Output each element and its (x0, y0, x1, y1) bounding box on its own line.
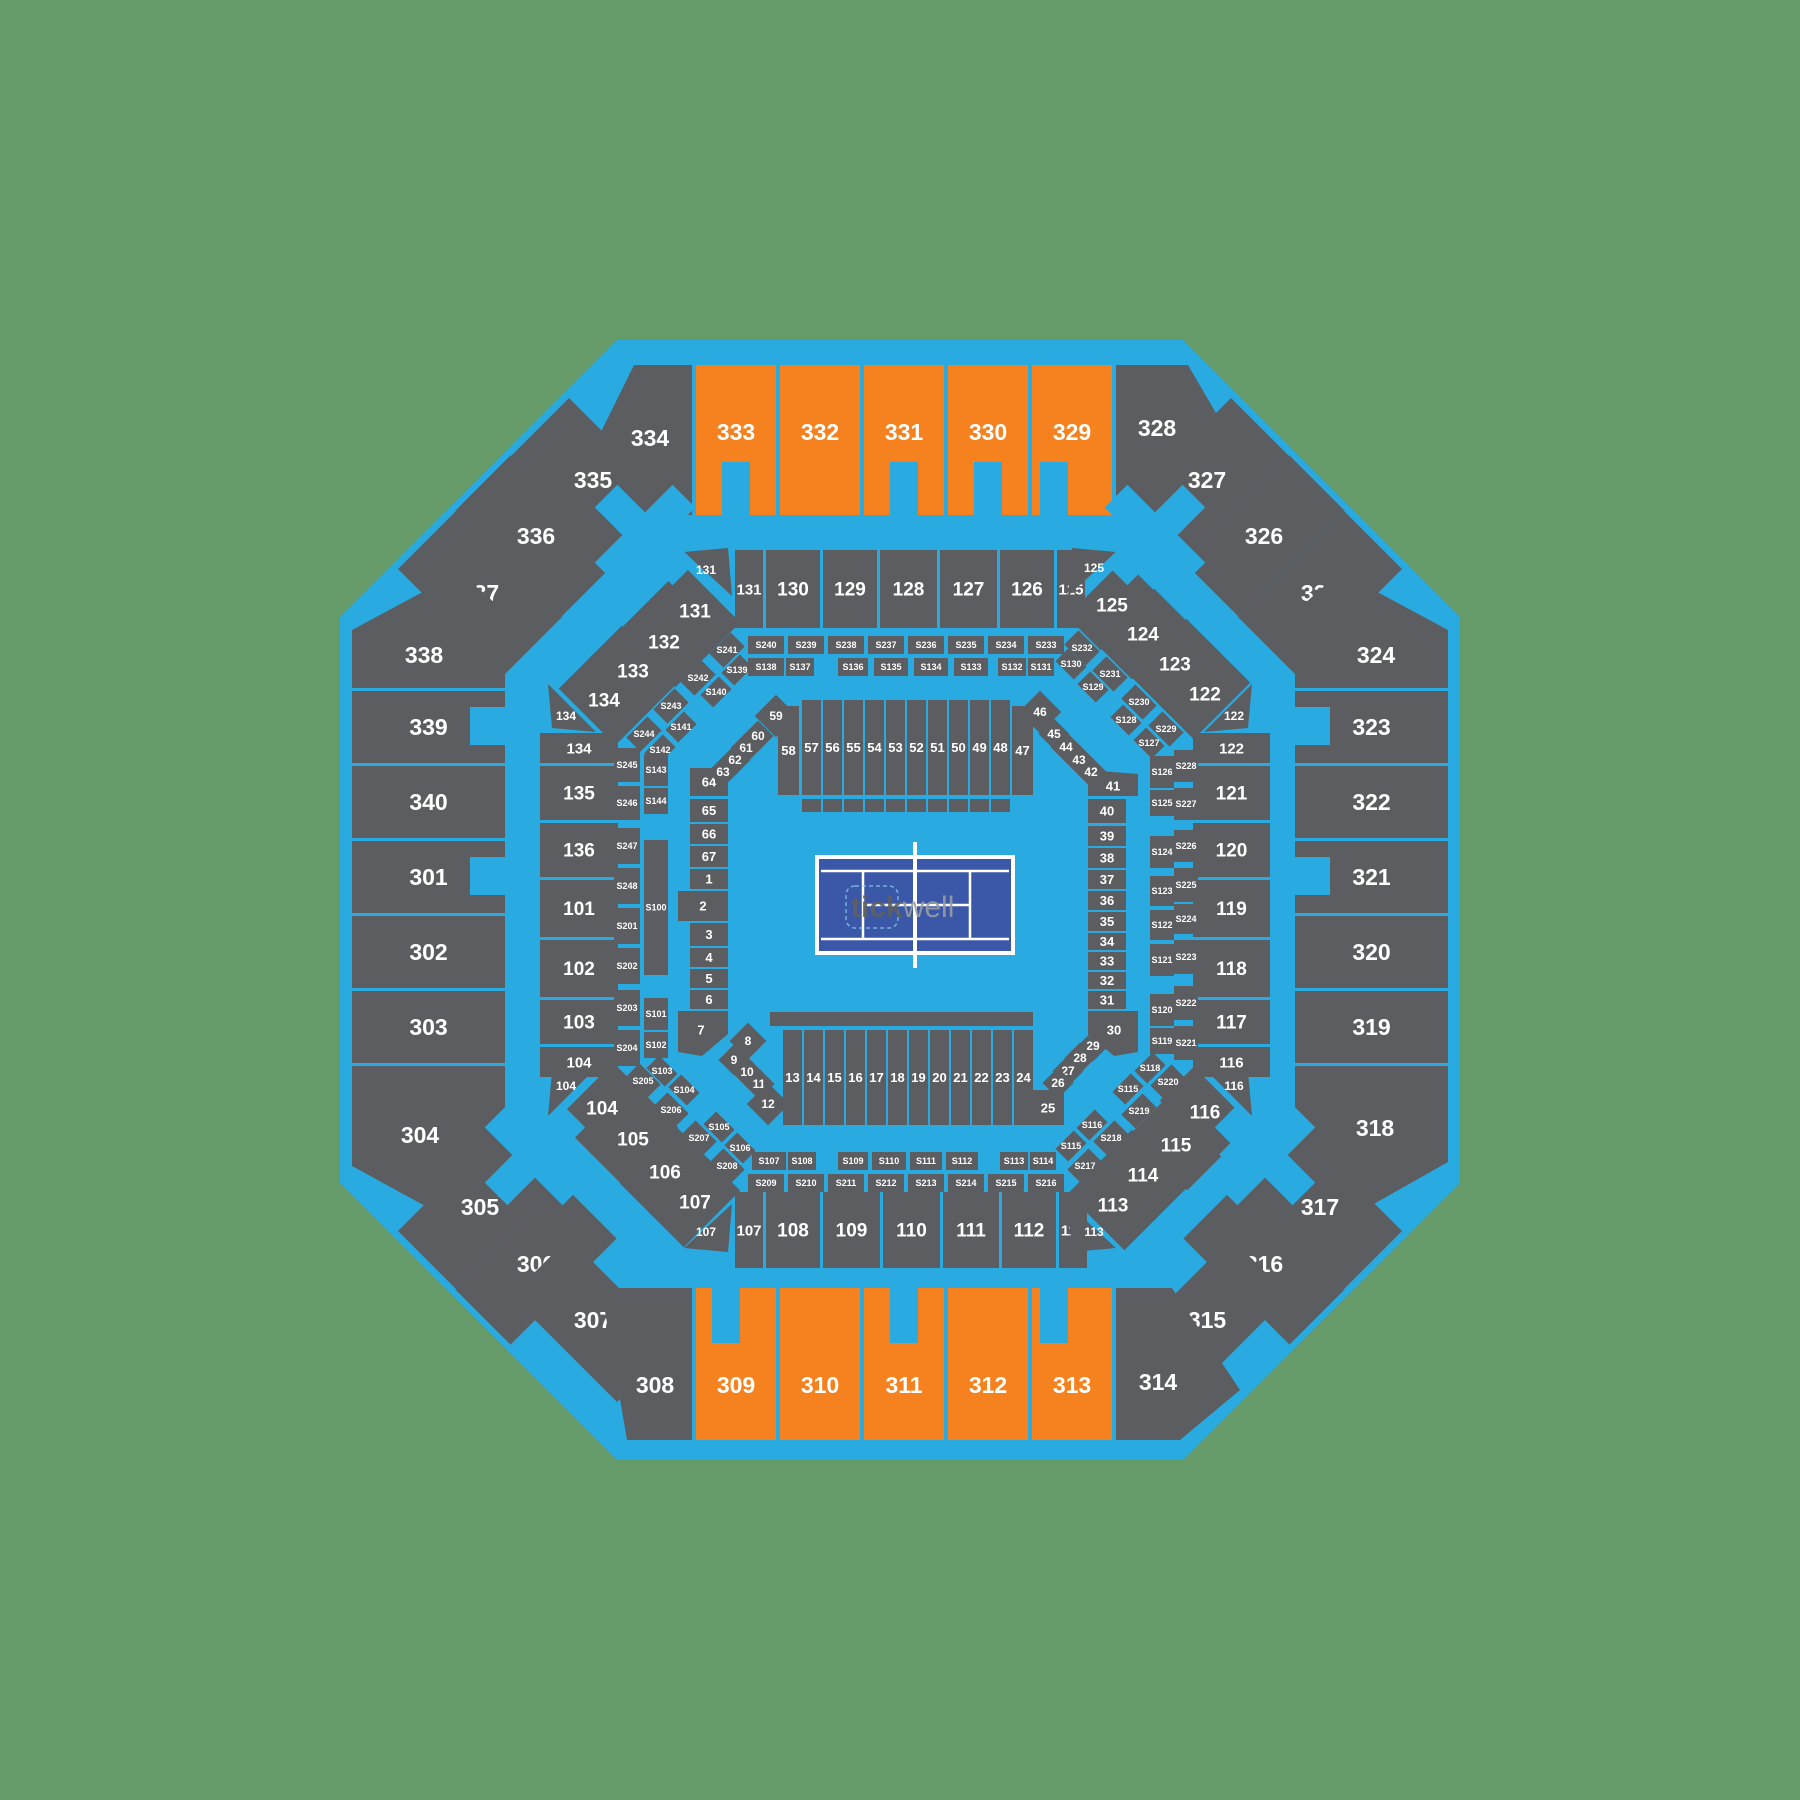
section-120[interactable]: 120 (1193, 823, 1270, 877)
section-label: 17 (869, 1070, 883, 1085)
section-label: S132 (1001, 662, 1022, 672)
section-label: 334 (631, 425, 670, 451)
section-S247[interactable]: S247 (614, 828, 640, 864)
courtside-box (949, 799, 968, 812)
section-label: S127 (1138, 738, 1159, 748)
section-label: S206 (660, 1105, 681, 1115)
section-S212[interactable]: S212 (868, 1174, 904, 1192)
section-label: 329 (1053, 419, 1091, 445)
section-S138[interactable]: S138 (748, 658, 784, 676)
section-label: S241 (716, 645, 737, 655)
section-label: S119 (1152, 1036, 1173, 1046)
tennis-court: tickwell (817, 842, 1013, 968)
section-label: S123 (1151, 886, 1172, 896)
section-label: 110 (896, 1221, 927, 1242)
section-label: 116 (1219, 1054, 1243, 1071)
section-117[interactable]: 117 (1193, 1000, 1270, 1044)
courtside-box (770, 1012, 1033, 1026)
section-label: 104 (586, 1099, 618, 1120)
section-label: S115 (1061, 1141, 1082, 1151)
section-label: S202 (616, 961, 637, 971)
section-130[interactable]: 130 (766, 550, 820, 628)
section-108[interactable]: 108 (766, 1192, 820, 1268)
section-103[interactable]: 103 (540, 1000, 618, 1044)
section-S108[interactable]: S108 (788, 1152, 816, 1170)
section-20[interactable]: 20 (930, 1030, 949, 1125)
section-label: 134 (556, 709, 576, 723)
section-S121[interactable]: S121 (1150, 944, 1174, 976)
section-label: 15 (827, 1070, 841, 1085)
section-label: S142 (649, 745, 670, 755)
section-S224[interactable]: S224 (1174, 904, 1198, 934)
section-label: S124 (1151, 847, 1172, 857)
section-52[interactable]: 52 (907, 700, 926, 795)
section-332[interactable]: 332 (780, 365, 860, 515)
section-label: S203 (616, 1003, 637, 1013)
section-19[interactable]: 19 (909, 1030, 928, 1125)
section-label: S125 (1151, 798, 1172, 808)
section-S136[interactable]: S136 (838, 658, 868, 676)
courtside-box (991, 799, 1010, 812)
section-S143[interactable]: S143 (644, 754, 668, 786)
section-label: 324 (1357, 642, 1396, 668)
section-label: S126 (1151, 767, 1172, 777)
section-135[interactable]: 135 (540, 766, 618, 820)
section-67[interactable]: 67 (690, 846, 728, 867)
section-label: S246 (616, 798, 637, 808)
section-label: 1 (705, 872, 712, 887)
section-label: 328 (1138, 415, 1177, 441)
section-label: S118 (1140, 1063, 1161, 1073)
section-340[interactable]: 340 (352, 766, 505, 838)
section-label: 8 (745, 1034, 752, 1048)
section-label: 59 (769, 709, 783, 723)
section-label: 326 (1245, 523, 1283, 549)
section-label: 311 (885, 1372, 922, 1398)
section-16[interactable]: 16 (846, 1030, 865, 1125)
section-S202[interactable]: S202 (614, 948, 640, 984)
section-S122[interactable]: S122 (1150, 910, 1174, 940)
section-label: 305 (461, 1194, 500, 1220)
section-label: S113 (1004, 1156, 1025, 1166)
section-S123[interactable]: S123 (1150, 876, 1174, 906)
section-label: 122 (1219, 740, 1244, 757)
section-label: 111 (956, 1221, 986, 1242)
section-S238[interactable]: S238 (828, 636, 864, 654)
section-label: S106 (729, 1143, 750, 1153)
section-S214[interactable]: S214 (948, 1174, 984, 1192)
section-label: 13 (785, 1070, 799, 1085)
section-label: 12 (761, 1097, 775, 1111)
section-S209[interactable]: S209 (748, 1174, 784, 1192)
section-label: S229 (1155, 724, 1176, 734)
section-label: 7 (697, 1023, 704, 1038)
section-label: S128 (1115, 715, 1136, 725)
section-label: 115 (1161, 1136, 1192, 1157)
section-label: 107 (679, 1193, 711, 1214)
section-label: 116 (1190, 1103, 1221, 1124)
section-label: 323 (1352, 714, 1390, 740)
section-S210[interactable]: S210 (788, 1174, 824, 1192)
section-22[interactable]: 22 (972, 1030, 991, 1125)
section-S240[interactable]: S240 (748, 636, 784, 654)
section-label: S211 (836, 1178, 857, 1188)
section-label: 101 (563, 899, 595, 920)
section-label: 66 (702, 827, 716, 842)
section-label: 313 (1053, 1372, 1091, 1398)
section-56[interactable]: 56 (823, 700, 842, 795)
section-S234[interactable]: S234 (988, 636, 1024, 654)
section-label: S115 (1118, 1084, 1139, 1094)
section-label: S232 (1071, 643, 1092, 653)
section-320[interactable]: 320 (1295, 916, 1448, 988)
section-33[interactable]: 33 (1088, 952, 1126, 970)
section-18[interactable]: 18 (888, 1030, 907, 1125)
section-112[interactable]: 112 (1002, 1192, 1056, 1268)
section-label: S223 (1175, 952, 1196, 962)
section-label: S239 (795, 640, 816, 650)
section-50[interactable]: 50 (949, 700, 968, 795)
section-119[interactable]: 119 (1193, 880, 1270, 937)
section-label: 136 (563, 841, 595, 862)
section-label: 118 (1216, 959, 1247, 980)
section-S204[interactable]: S204 (614, 1030, 640, 1066)
section-110[interactable]: 110 (883, 1192, 940, 1268)
section-label: S243 (660, 701, 681, 711)
section-51[interactable]: 51 (928, 700, 947, 795)
section-label: S122 (1151, 920, 1172, 930)
section-label: S109 (842, 1156, 863, 1166)
section-label: 319 (1352, 1014, 1390, 1040)
section-label: S101 (645, 1009, 666, 1019)
section-S111[interactable]: S111 (910, 1152, 942, 1170)
section-66[interactable]: 66 (690, 824, 728, 844)
section-label: 2 (699, 899, 706, 914)
section-310[interactable]: 310 (780, 1288, 860, 1440)
section-label: 6 (705, 992, 712, 1007)
section-label: S219 (1128, 1106, 1149, 1116)
section-128[interactable]: 128 (880, 550, 937, 628)
section-109[interactable]: 109 (823, 1192, 880, 1268)
section-label: S138 (755, 662, 776, 672)
section-322[interactable]: 322 (1295, 766, 1448, 838)
section-S216[interactable]: S216 (1028, 1174, 1064, 1192)
section-label: 39 (1100, 829, 1114, 844)
section-label: S230 (1128, 697, 1149, 707)
section-131[interactable]: 131 (735, 550, 763, 628)
section-65[interactable]: 65 (690, 799, 728, 822)
section-label: S217 (1074, 1161, 1095, 1171)
section-S131[interactable]: S131 (1028, 658, 1054, 676)
stadium-seating-map: 3343333323313303293283353363373273263253… (0, 0, 1800, 1800)
section-21[interactable]: 21 (951, 1030, 970, 1125)
section-label: 327 (1188, 467, 1226, 493)
courtside-box (844, 799, 863, 812)
section-6[interactable]: 6 (690, 990, 728, 1009)
section-label: 125 (1084, 561, 1104, 575)
section-126[interactable]: 126 (1000, 550, 1054, 628)
section-label: 131 (696, 563, 716, 577)
section-label: S225 (1175, 880, 1196, 890)
section-label: 19 (911, 1070, 925, 1085)
section-5[interactable]: 5 (690, 969, 728, 988)
section-label: 122 (1189, 685, 1221, 706)
section-label: 108 (777, 1221, 809, 1242)
section-S107[interactable]: S107 (752, 1152, 786, 1170)
section-label: S238 (835, 640, 856, 650)
section-label: 124 (1127, 625, 1159, 646)
section-label: 312 (969, 1372, 1007, 1398)
section-S221[interactable]: S221 (1174, 1026, 1198, 1060)
section-label: S247 (616, 841, 637, 851)
section-label: 30 (1107, 1023, 1121, 1038)
section-S236[interactable]: S236 (908, 636, 944, 654)
section-57[interactable]: 57 (802, 700, 821, 795)
section-label: 41 (1106, 779, 1120, 794)
section-37[interactable]: 37 (1088, 870, 1126, 889)
section-label: S140 (705, 687, 726, 697)
tunnel-notch (712, 1288, 740, 1343)
section-label: 22 (974, 1070, 988, 1085)
section-label: 310 (801, 1372, 839, 1398)
section-label: 121 (1216, 784, 1248, 805)
tunnel-notch (890, 462, 918, 515)
section-label: 338 (405, 642, 444, 668)
section-S213[interactable]: S213 (908, 1174, 944, 1192)
section-4[interactable]: 4 (690, 948, 728, 967)
section-S237[interactable]: S237 (868, 636, 904, 654)
section-23[interactable]: 23 (993, 1030, 1012, 1125)
section-53[interactable]: 53 (886, 700, 905, 795)
section-S109[interactable]: S109 (838, 1152, 868, 1170)
section-label: 23 (995, 1070, 1009, 1085)
section-17[interactable]: 17 (867, 1030, 886, 1125)
section-label: S104 (673, 1085, 694, 1095)
section-35[interactable]: 35 (1088, 912, 1126, 931)
section-24[interactable]: 24 (1014, 1030, 1033, 1125)
section-label: S214 (955, 1178, 976, 1188)
section-319[interactable]: 319 (1295, 991, 1448, 1063)
section-S144[interactable]: S144 (644, 788, 668, 814)
section-101[interactable]: 101 (540, 880, 618, 937)
section-34[interactable]: 34 (1088, 933, 1126, 950)
section-label: 134 (588, 691, 620, 712)
section-label: 133 (617, 662, 649, 683)
section-label: 340 (409, 789, 447, 815)
section-S110[interactable]: S110 (872, 1152, 906, 1170)
section-111[interactable]: 111 (943, 1192, 999, 1268)
section-label: 314 (1139, 1369, 1178, 1395)
section-S113[interactable]: S113 (1000, 1152, 1028, 1170)
section-label: S224 (1175, 914, 1196, 924)
section-label: 308 (636, 1372, 675, 1398)
section-40[interactable]: 40 (1088, 799, 1126, 823)
section-label: 65 (702, 803, 716, 818)
section-label: S111 (916, 1156, 936, 1166)
section-label: S209 (755, 1178, 776, 1188)
section-label: 132 (648, 633, 680, 654)
section-label: 56 (825, 740, 839, 755)
section-136[interactable]: 136 (540, 823, 618, 877)
section-S132[interactable]: S132 (998, 658, 1026, 676)
section-label: 130 (777, 580, 809, 601)
section-38[interactable]: 38 (1088, 848, 1126, 868)
section-label: 304 (401, 1122, 440, 1148)
courtside-box (865, 799, 884, 812)
section-S226[interactable]: S226 (1174, 830, 1198, 862)
section-label: 335 (574, 467, 613, 493)
section-label: S233 (1035, 640, 1056, 650)
section-S233[interactable]: S233 (1028, 636, 1064, 654)
section-S227[interactable]: S227 (1174, 788, 1198, 820)
section-S101[interactable]: S101 (644, 998, 668, 1030)
section-label: S237 (875, 640, 896, 650)
section-label: 331 (885, 419, 924, 445)
section-label: 67 (702, 849, 716, 864)
tunnel-notch (1295, 707, 1330, 745)
section-label: S234 (995, 640, 1016, 650)
section-49[interactable]: 49 (970, 700, 989, 795)
section-label: S121 (1151, 955, 1172, 965)
section-label: S222 (1175, 998, 1196, 1008)
section-31[interactable]: 31 (1088, 991, 1126, 1009)
section-label: 9 (731, 1053, 738, 1067)
section-127[interactable]: 127 (940, 550, 997, 628)
section-label: S105 (708, 1122, 729, 1132)
section-label: 330 (969, 419, 1007, 445)
section-S119[interactable]: S119 (1150, 1028, 1174, 1054)
section-label: 320 (1352, 939, 1390, 965)
section-39[interactable]: 39 (1088, 826, 1126, 846)
section-118[interactable]: 118 (1193, 940, 1270, 997)
section-S134[interactable]: S134 (914, 658, 948, 676)
section-label: 25 (1041, 1101, 1055, 1116)
section-label: 37 (1100, 872, 1114, 887)
section-36[interactable]: 36 (1088, 891, 1126, 910)
section-label: 38 (1100, 851, 1114, 866)
section-S225[interactable]: S225 (1174, 868, 1198, 902)
courtside-box (802, 799, 821, 812)
section-303[interactable]: 303 (352, 991, 505, 1063)
tunnel-notch (974, 462, 1002, 515)
section-label: S218 (1100, 1133, 1121, 1143)
section-2[interactable]: 2 (678, 891, 728, 921)
section-label: 14 (806, 1070, 821, 1085)
section-label: 34 (1100, 934, 1115, 949)
section-label: S102 (645, 1040, 666, 1050)
section-label: S215 (995, 1178, 1016, 1188)
section-134[interactable]: 134 (540, 733, 618, 763)
section-S137[interactable]: S137 (786, 658, 814, 676)
section-label: 47 (1015, 743, 1029, 758)
section-S120[interactable]: S120 (1150, 994, 1174, 1026)
section-S125[interactable]: S125 (1150, 790, 1174, 816)
section-S133[interactable]: S133 (954, 658, 988, 676)
section-label: S201 (616, 921, 637, 931)
section-32[interactable]: 32 (1088, 972, 1126, 989)
section-S124[interactable]: S124 (1150, 836, 1174, 868)
section-label: 123 (1159, 655, 1191, 676)
section-label: S220 (1157, 1077, 1178, 1087)
section-S112[interactable]: S112 (946, 1152, 978, 1170)
section-55[interactable]: 55 (844, 700, 863, 795)
section-S126[interactable]: S126 (1150, 756, 1174, 788)
section-label: 321 (1352, 864, 1391, 890)
section-102[interactable]: 102 (540, 940, 618, 997)
section-S102[interactable]: S102 (644, 1032, 668, 1058)
section-13[interactable]: 13 (783, 1030, 802, 1125)
section-S135[interactable]: S135 (874, 658, 908, 676)
section-S201[interactable]: S201 (614, 908, 640, 944)
section-label: S120 (1151, 1005, 1172, 1015)
section-label: 119 (1216, 899, 1247, 920)
section-S222[interactable]: S222 (1174, 986, 1198, 1020)
section-129[interactable]: 129 (823, 550, 877, 628)
section-48[interactable]: 48 (991, 700, 1010, 795)
section-S223[interactable]: S223 (1174, 940, 1198, 974)
section-S114[interactable]: S114 (1030, 1152, 1056, 1170)
section-label: 336 (517, 523, 555, 549)
section-label: S228 (1175, 761, 1196, 771)
section-S246[interactable]: S246 (614, 786, 640, 820)
section-1[interactable]: 1 (690, 869, 728, 889)
section-label: 102 (563, 959, 595, 980)
section-label: 106 (649, 1163, 681, 1184)
section-label: S108 (791, 1156, 812, 1166)
section-label: 113 (1098, 1196, 1129, 1217)
section-S248[interactable]: S248 (614, 868, 640, 904)
section-label: 135 (563, 784, 595, 805)
section-label: 35 (1100, 914, 1114, 929)
section-label: 58 (781, 743, 795, 758)
section-S245[interactable]: S245 (614, 748, 640, 782)
section-label: 105 (617, 1130, 649, 1151)
section-302[interactable]: 302 (352, 916, 505, 988)
section-label: 122 (1224, 709, 1244, 723)
section-S203[interactable]: S203 (614, 990, 640, 1026)
section-label: 50 (951, 740, 965, 755)
section-label: 302 (409, 939, 447, 965)
section-312[interactable]: 312 (948, 1288, 1028, 1440)
watermark-logo: tickwell (851, 891, 954, 924)
section-121[interactable]: 121 (1193, 766, 1270, 820)
section-S100[interactable]: S100 (644, 840, 668, 975)
section-label: 129 (834, 580, 866, 601)
section-54[interactable]: 54 (865, 700, 884, 795)
section-107[interactable]: 107 (735, 1192, 763, 1268)
section-label: S208 (716, 1161, 737, 1171)
section-S215[interactable]: S215 (988, 1174, 1024, 1192)
tunnel-notch (722, 462, 750, 515)
courtside-box (928, 799, 947, 812)
section-S235[interactable]: S235 (948, 636, 984, 654)
section-label: S212 (875, 1178, 896, 1188)
section-122[interactable]: 122 (1193, 733, 1270, 763)
section-label: 116 (1224, 1079, 1244, 1093)
section-label: 112 (1014, 1221, 1045, 1242)
section-14[interactable]: 14 (804, 1030, 823, 1125)
section-S239[interactable]: S239 (788, 636, 824, 654)
section-S228[interactable]: S228 (1174, 750, 1198, 782)
section-label: S240 (755, 640, 776, 650)
section-S211[interactable]: S211 (828, 1174, 864, 1192)
section-label: S205 (632, 1076, 653, 1086)
section-3[interactable]: 3 (690, 923, 728, 946)
section-15[interactable]: 15 (825, 1030, 844, 1125)
section-label: 36 (1100, 893, 1114, 908)
courtside-box (907, 799, 926, 812)
section-label: 32 (1100, 973, 1114, 988)
